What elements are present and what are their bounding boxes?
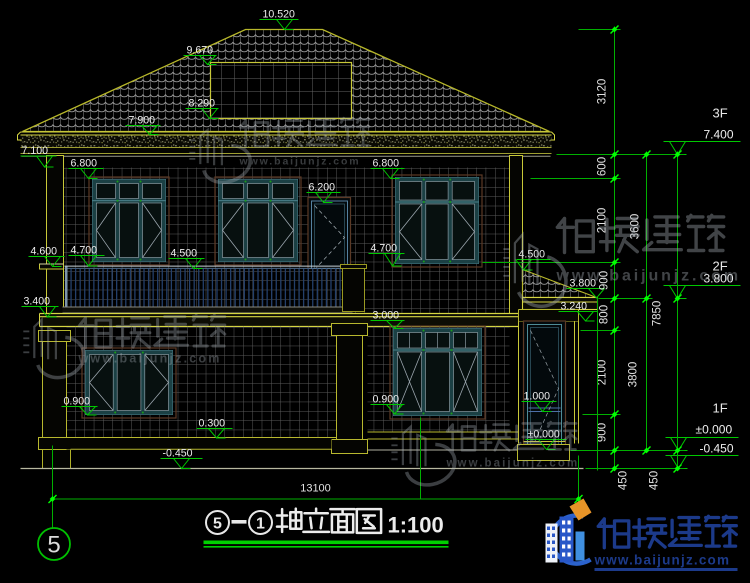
svg-text:www.baijunjz.com: www.baijunjz.com — [556, 268, 742, 285]
svg-text:4.600: 4.600 — [31, 246, 58, 258]
svg-text:3120: 3120 — [597, 79, 609, 105]
svg-text:900: 900 — [597, 423, 609, 442]
svg-text:0.900: 0.900 — [64, 396, 91, 408]
svg-text:9.670: 9.670 — [187, 45, 214, 57]
svg-text:5: 5 — [213, 516, 222, 533]
svg-text:-0.450: -0.450 — [700, 442, 734, 456]
svg-text:450: 450 — [618, 471, 630, 490]
svg-text:3.240: 3.240 — [561, 301, 588, 313]
svg-text:2100: 2100 — [597, 360, 609, 386]
svg-text:±0.000: ±0.000 — [696, 423, 733, 437]
svg-text:www.baijunjz.com: www.baijunjz.com — [594, 553, 731, 568]
svg-text:1.000: 1.000 — [524, 391, 551, 403]
svg-text:3.000: 3.000 — [373, 310, 400, 322]
svg-text:1F: 1F — [713, 401, 728, 416]
svg-text:1: 1 — [256, 516, 265, 533]
svg-text:600: 600 — [597, 157, 609, 176]
svg-text:7.400: 7.400 — [704, 128, 734, 142]
svg-text:7.100: 7.100 — [22, 145, 49, 157]
svg-text:800: 800 — [599, 305, 611, 324]
svg-text:6.200: 6.200 — [309, 182, 336, 194]
svg-text:0.300: 0.300 — [199, 418, 226, 430]
svg-text:4.700: 4.700 — [71, 245, 98, 257]
svg-text:www.baijunjz.com: www.baijunjz.com — [239, 156, 361, 168]
svg-text:www.baijunjz.com: www.baijunjz.com — [78, 352, 222, 366]
svg-text:4.500: 4.500 — [171, 248, 198, 260]
svg-text:3800: 3800 — [628, 362, 640, 388]
svg-text:10.520: 10.520 — [263, 9, 296, 21]
svg-text:6.800: 6.800 — [71, 158, 98, 170]
svg-text:7850: 7850 — [652, 301, 664, 327]
svg-text:www.baijunjz.com: www.baijunjz.com — [446, 458, 580, 470]
svg-text:6.800: 6.800 — [373, 158, 400, 170]
svg-text:13100: 13100 — [300, 483, 331, 495]
svg-text:7.900: 7.900 — [129, 115, 156, 127]
svg-text:5: 5 — [47, 532, 60, 559]
svg-text:3F: 3F — [713, 106, 728, 121]
svg-text:-0.450: -0.450 — [163, 448, 193, 460]
svg-text:1:100: 1:100 — [388, 513, 444, 538]
svg-text:8.290: 8.290 — [189, 98, 216, 110]
svg-text:0.900: 0.900 — [373, 394, 400, 406]
svg-text:4.700: 4.700 — [371, 243, 398, 255]
svg-text:3.400: 3.400 — [24, 296, 51, 308]
svg-text:450: 450 — [649, 471, 661, 490]
